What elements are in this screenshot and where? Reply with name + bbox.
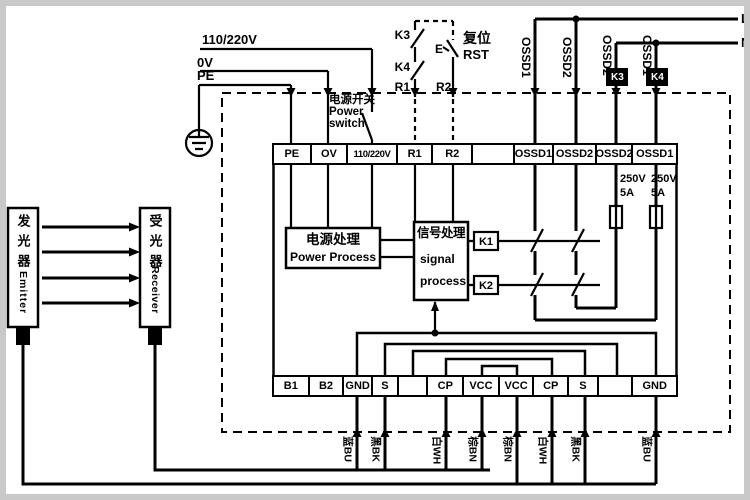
k3-contact-label: K3: [392, 29, 410, 41]
terminal-s: S: [373, 377, 399, 395]
top-terminal-strip: PE OV 110/220V R1 R2 OSSD1 OSSD2 OSSD2 O…: [272, 143, 678, 165]
signal-process-en1-label: signal: [420, 253, 455, 265]
receiver-en-label: Receiver: [149, 266, 161, 314]
terminal-ossd1: OSSD1: [515, 145, 555, 163]
terminal-r1: R1: [398, 145, 434, 163]
ossd2-wire-label: OSSD2: [561, 37, 573, 93]
fuses: [610, 206, 662, 228]
power-process-cn-label: 电源处理: [286, 233, 380, 247]
terminal-vcc: VCC: [500, 377, 535, 395]
fuse-voltage-label: 250V: [620, 174, 646, 185]
terminal-blank: [599, 377, 634, 395]
emitter-box: 发光器: [8, 214, 38, 274]
emitter-cn-label: 发光器: [14, 214, 33, 274]
fuse-current-label: 5A: [620, 188, 634, 199]
terminal-blank: [473, 145, 515, 163]
power-switch-en2-label: switch: [329, 119, 365, 131]
fuse-current-label: 5A: [651, 188, 665, 199]
fuse-voltage-label: 250V: [651, 174, 677, 185]
wire-color-black-label: 黑BK: [570, 436, 581, 472]
signal-process-cn-label: 信号处理: [414, 227, 468, 240]
emitter-box-en: Emitter: [8, 271, 38, 314]
emitter-cable: [23, 345, 656, 484]
reset-button-label: E: [435, 43, 443, 55]
l-line-label: L: [741, 12, 749, 25]
r1-label: R1: [390, 81, 410, 93]
terminal-ossd2: OSSD2: [597, 145, 634, 163]
terminal-cp: CP: [534, 377, 569, 395]
k2-label: K2: [474, 281, 498, 292]
r2-label: R2: [436, 81, 451, 93]
k3-coil-label: K3: [611, 73, 624, 83]
terminal-r2: R2: [433, 145, 473, 163]
wire-color-blue-label: 蓝BU: [342, 436, 353, 472]
terminal-pe: PE: [274, 145, 312, 163]
light-beams: [42, 227, 129, 303]
internal-wiring: [286, 165, 600, 333]
ossd-internal-wiring: [535, 165, 656, 320]
bottom-terminal-strip: B1 B2 GND S CP VCC VCC CP S GND: [272, 375, 678, 397]
wire-color-blue-label: 蓝BU: [641, 436, 652, 472]
wire-color-white-label: 白WH: [431, 436, 442, 472]
external-wiring: [23, 227, 656, 484]
terminal-ossd2: OSSD2: [554, 145, 597, 163]
power-process-en-label: Power Process: [286, 251, 380, 263]
terminal-ossd1: OSSD1: [633, 145, 676, 163]
terminal-0v: OV: [312, 145, 349, 163]
terminal-110-220v: 110/220V: [348, 145, 398, 163]
terminal-vcc: VCC: [464, 377, 500, 395]
k4-coil-label: K4: [651, 73, 664, 83]
wire-color-brown-label: 棕BN: [502, 436, 513, 472]
n-line-label: N: [741, 36, 750, 49]
rail-110-220v-label: 110/220V: [202, 33, 257, 46]
signal-process-en2-label: process: [420, 275, 466, 287]
terminal-b2: B2: [310, 377, 345, 395]
terminal-cp: CP: [428, 377, 464, 395]
bottom-bus-loops: [357, 333, 656, 375]
receiver-connector: [148, 327, 162, 345]
receiver-box: 受光器: [140, 214, 170, 274]
wire-color-brown-label: 棕BN: [467, 436, 478, 472]
emitter-connector: [16, 327, 30, 345]
wire-color-white-label: 白WH: [537, 436, 548, 472]
reset-cn-label: 复位: [463, 31, 491, 45]
k4-contact-label: K4: [392, 61, 410, 73]
rail-pe-label: PE: [197, 69, 214, 82]
terminal-blank: [399, 377, 429, 395]
power-switch-en1-label: Power: [329, 107, 364, 119]
terminal-s: S: [569, 377, 599, 395]
terminal-b1: B1: [274, 377, 310, 395]
receiver-box-en: Receiver: [140, 266, 170, 314]
receiver-cn-label: 受光器: [146, 214, 165, 274]
emitter-en-label: Emitter: [17, 271, 29, 314]
k1-label: K1: [474, 237, 498, 248]
wire-color-black-label: 黑BK: [370, 436, 381, 472]
power-switch-cn-label: 电源开关: [329, 95, 375, 107]
wiring-diagram: 110/220V 0V PE K3 K4 R1 E 复位 RST R2 电源开关…: [0, 0, 750, 500]
terminal-gnd: GND: [633, 377, 676, 395]
reset-en-label: RST: [463, 48, 489, 61]
ossd1-wire-label: OSSD1: [520, 37, 532, 93]
terminal-gnd: GND: [344, 377, 373, 395]
